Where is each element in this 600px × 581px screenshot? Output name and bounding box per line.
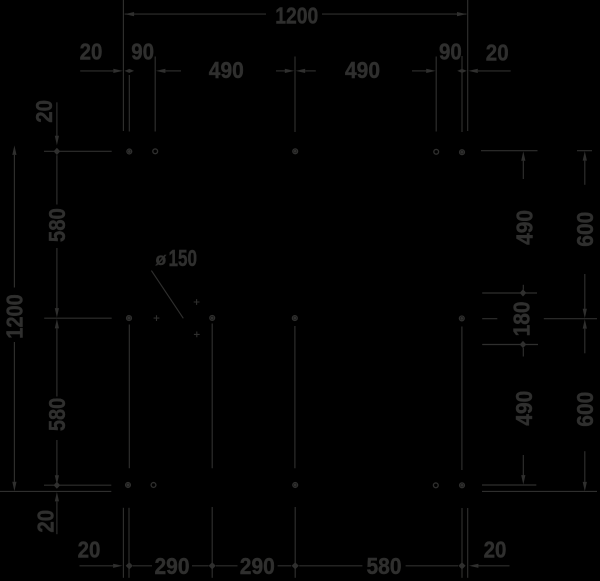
svg-text:290: 290 bbox=[155, 553, 190, 579]
svg-text:490: 490 bbox=[511, 210, 537, 245]
svg-text:20: 20 bbox=[486, 39, 509, 65]
svg-text:20: 20 bbox=[484, 537, 507, 563]
svg-text:580: 580 bbox=[44, 398, 70, 432]
svg-text:580: 580 bbox=[44, 208, 70, 242]
svg-text:290: 290 bbox=[240, 553, 275, 579]
svg-text:1200: 1200 bbox=[1, 294, 27, 339]
svg-text:20: 20 bbox=[31, 100, 57, 123]
svg-text:1200: 1200 bbox=[275, 3, 318, 29]
svg-text:490: 490 bbox=[511, 391, 537, 426]
svg-text:20: 20 bbox=[78, 537, 101, 563]
svg-text:ø: ø bbox=[156, 249, 167, 269]
svg-text:600: 600 bbox=[572, 392, 598, 427]
svg-text:600: 600 bbox=[572, 212, 598, 247]
svg-text:150: 150 bbox=[169, 245, 198, 271]
svg-text:90: 90 bbox=[439, 39, 462, 65]
svg-text:20: 20 bbox=[33, 510, 59, 533]
svg-text:490: 490 bbox=[209, 57, 244, 83]
svg-text:20: 20 bbox=[80, 39, 103, 65]
svg-text:90: 90 bbox=[131, 39, 154, 65]
svg-text:490: 490 bbox=[345, 57, 380, 83]
svg-text:580: 580 bbox=[367, 553, 402, 579]
svg-text:180: 180 bbox=[509, 301, 535, 336]
